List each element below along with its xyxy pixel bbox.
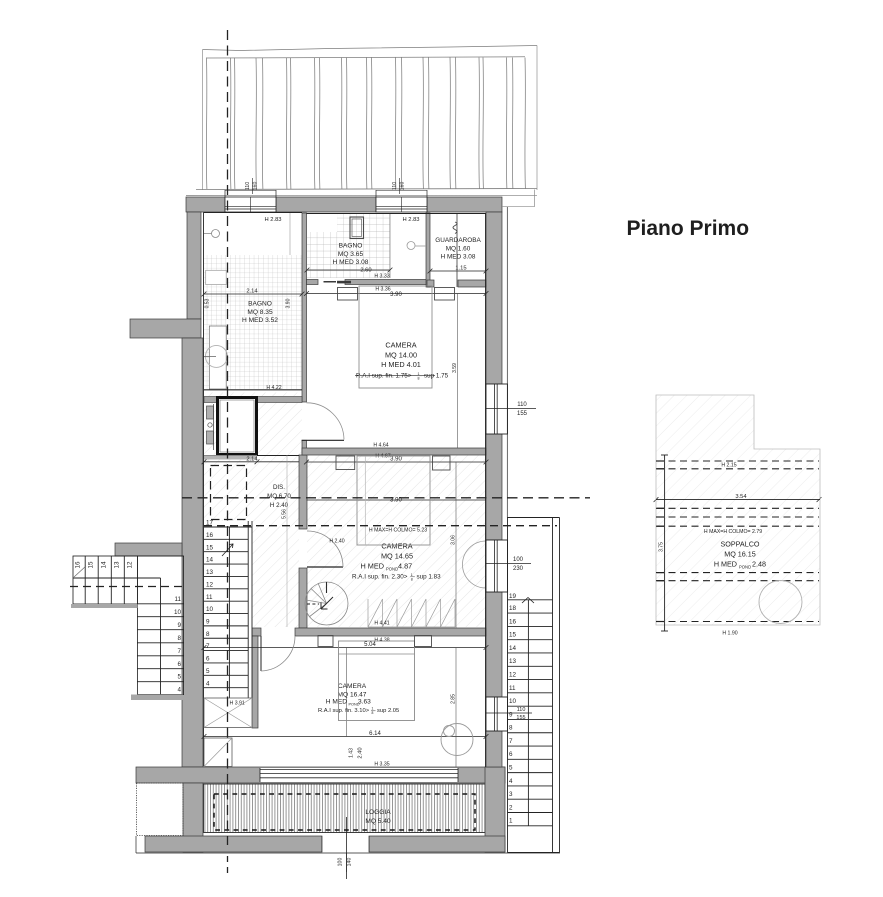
svg-text:4: 4 <box>206 680 210 687</box>
svg-text:6: 6 <box>509 751 513 758</box>
svg-text:14: 14 <box>206 557 214 564</box>
svg-text:0.53: 0.53 <box>204 298 210 308</box>
svg-text:H 3.33: H 3.33 <box>374 274 389 280</box>
svg-text:8: 8 <box>411 578 413 582</box>
svg-text:H 2.83: H 2.83 <box>264 217 281 223</box>
svg-text:4.87: 4.87 <box>398 562 412 571</box>
svg-text:R.A.I sup. fin. 2.30>: R.A.I sup. fin. 2.30> <box>352 574 408 581</box>
svg-text:2.85: 2.85 <box>450 694 456 704</box>
svg-text:H 1.90: H 1.90 <box>722 631 737 637</box>
svg-text:sup 1.83: sup 1.83 <box>417 574 442 581</box>
svg-text:H MED 3.08: H MED 3.08 <box>333 259 369 266</box>
svg-text:POND: POND <box>739 565 751 570</box>
svg-text:155: 155 <box>516 715 525 721</box>
svg-text:MQ 16.15: MQ 16.15 <box>724 550 756 559</box>
svg-text:15: 15 <box>509 632 517 639</box>
svg-text:LOGGIA: LOGGIA <box>365 809 391 816</box>
svg-text:H MED: H MED <box>326 699 347 706</box>
svg-text:9: 9 <box>206 619 210 626</box>
svg-text:7: 7 <box>177 648 181 655</box>
svg-text:10: 10 <box>206 606 214 613</box>
svg-text:H 2.83: H 2.83 <box>402 217 419 223</box>
svg-text:10: 10 <box>174 609 182 616</box>
svg-text:5: 5 <box>509 765 513 772</box>
svg-text:H 4.38: H 4.38 <box>374 638 389 644</box>
svg-text:4: 4 <box>509 778 513 785</box>
svg-text:1: 1 <box>411 573 413 577</box>
svg-text:8: 8 <box>418 377 420 381</box>
svg-text:10: 10 <box>509 698 517 705</box>
svg-text:140: 140 <box>347 858 353 867</box>
svg-text:CAMERA: CAMERA <box>385 341 416 350</box>
svg-text:2.40: 2.40 <box>358 747 364 758</box>
svg-text:7: 7 <box>206 643 210 650</box>
svg-text:MQ 5.40: MQ 5.40 <box>365 818 391 825</box>
svg-text:MQ 3.65: MQ 3.65 <box>338 251 364 258</box>
svg-text:16: 16 <box>509 618 517 625</box>
svg-text:1: 1 <box>372 707 374 711</box>
svg-text:15: 15 <box>87 561 94 569</box>
svg-text:H MED 4.01: H MED 4.01 <box>381 360 421 369</box>
svg-text:155: 155 <box>517 411 528 417</box>
svg-text:4: 4 <box>177 687 181 694</box>
svg-text:3.75: 3.75 <box>659 542 665 552</box>
svg-text:Piano Primo: Piano Primo <box>627 217 750 240</box>
svg-text:100: 100 <box>338 858 344 867</box>
svg-text:12: 12 <box>206 581 214 588</box>
svg-text:160: 160 <box>400 182 406 191</box>
svg-text:9: 9 <box>509 711 513 718</box>
svg-text:8: 8 <box>206 631 210 638</box>
svg-text:5: 5 <box>177 674 181 681</box>
svg-text:2.60: 2.60 <box>360 268 371 274</box>
svg-text:11: 11 <box>206 594 213 601</box>
svg-text:2.48: 2.48 <box>752 560 766 569</box>
svg-text:H MED 3.52: H MED 3.52 <box>242 317 278 324</box>
svg-text:MQ 1.60: MQ 1.60 <box>446 245 471 252</box>
svg-text:13: 13 <box>509 658 517 665</box>
svg-text:MQ 14.65: MQ 14.65 <box>381 552 413 561</box>
svg-text:H 2.40: H 2.40 <box>270 502 289 509</box>
svg-text:H 4.67: H 4.67 <box>375 454 390 460</box>
svg-text:110: 110 <box>517 402 527 408</box>
svg-text:13: 13 <box>113 561 120 569</box>
svg-text:14: 14 <box>509 645 517 652</box>
svg-text:8: 8 <box>177 635 181 642</box>
svg-text:110: 110 <box>517 707 526 713</box>
svg-text:H MED: H MED <box>360 562 384 571</box>
svg-text:6.14: 6.14 <box>369 731 381 737</box>
svg-text:3.54: 3.54 <box>735 494 747 500</box>
svg-text:H 4.64: H 4.64 <box>373 443 388 449</box>
svg-text:8: 8 <box>372 711 374 715</box>
svg-text:1: 1 <box>509 818 513 825</box>
svg-text:H 3.36: H 3.36 <box>375 287 390 293</box>
svg-text:H 2.15: H 2.15 <box>721 463 736 469</box>
svg-text:3.90: 3.90 <box>390 457 402 463</box>
svg-text:BAGNO: BAGNO <box>248 301 272 308</box>
svg-text:sup 2.05: sup 2.05 <box>377 708 399 714</box>
svg-text:5.56: 5.56 <box>282 509 288 519</box>
svg-text:13: 13 <box>206 569 214 576</box>
svg-text:100: 100 <box>513 557 524 563</box>
svg-text:H 2.40: H 2.40 <box>329 539 344 545</box>
svg-text:16: 16 <box>74 561 81 569</box>
svg-text:1: 1 <box>418 372 420 376</box>
svg-text:5: 5 <box>206 668 210 675</box>
svg-text:3.06: 3.06 <box>450 535 456 545</box>
svg-text:H 3.91: H 3.91 <box>230 701 245 707</box>
svg-text:SOPPALCO: SOPPALCO <box>720 540 759 549</box>
svg-text:2: 2 <box>509 804 513 811</box>
svg-text:110: 110 <box>245 182 251 190</box>
svg-text:11: 11 <box>174 596 181 603</box>
svg-text:1.43: 1.43 <box>349 748 355 758</box>
svg-text:H MED 3.08: H MED 3.08 <box>441 254 476 261</box>
svg-text:3.59: 3.59 <box>452 363 458 373</box>
svg-text:16: 16 <box>206 532 214 539</box>
svg-text:3.63: 3.63 <box>358 699 371 706</box>
svg-text:DIS.: DIS. <box>273 484 285 491</box>
svg-text:3.90: 3.90 <box>390 292 402 298</box>
svg-text:9: 9 <box>177 622 181 629</box>
svg-text:3: 3 <box>509 791 513 798</box>
svg-text:6: 6 <box>206 656 210 663</box>
svg-text:2.14: 2.14 <box>246 289 258 295</box>
svg-text:8: 8 <box>509 725 513 732</box>
svg-text:230: 230 <box>513 566 524 572</box>
svg-text:MQ 14.00: MQ 14.00 <box>385 350 417 359</box>
svg-text:18: 18 <box>509 605 517 612</box>
svg-text:6: 6 <box>177 661 181 668</box>
svg-text:H MAX=H COLMO= 5.23: H MAX=H COLMO= 5.23 <box>369 528 427 534</box>
svg-text:BAGNO: BAGNO <box>339 243 363 250</box>
svg-text:12: 12 <box>509 671 517 678</box>
svg-text:GUARDAROBA: GUARDAROBA <box>435 237 481 244</box>
svg-text:H MED: H MED <box>714 560 737 569</box>
svg-text:CAMERA: CAMERA <box>338 683 367 690</box>
svg-text:7: 7 <box>509 738 513 745</box>
svg-text:MQ 6.70: MQ 6.70 <box>267 493 291 500</box>
svg-text:H 4.41: H 4.41 <box>374 621 389 627</box>
svg-text:3.90: 3.90 <box>286 298 292 308</box>
svg-text:19: 19 <box>509 593 517 600</box>
svg-text:160: 160 <box>253 182 259 191</box>
svg-text:POND: POND <box>386 567 398 572</box>
svg-text:110: 110 <box>392 182 398 190</box>
svg-text:H 3.35: H 3.35 <box>374 762 389 768</box>
svg-text:12: 12 <box>126 561 133 569</box>
svg-text:R.A.I sup. fin. 3.10>: R.A.I sup. fin. 3.10> <box>318 708 370 714</box>
svg-text:MQ 8.35: MQ 8.35 <box>247 309 273 316</box>
svg-text:CAMERA: CAMERA <box>381 542 412 551</box>
svg-text:MQ 16.47: MQ 16.47 <box>338 692 367 699</box>
svg-text:11: 11 <box>509 685 516 692</box>
svg-text:H MAX=H COLMO= 2.79: H MAX=H COLMO= 2.79 <box>704 529 762 535</box>
svg-text:14: 14 <box>100 561 107 569</box>
svg-text:15: 15 <box>206 544 214 551</box>
